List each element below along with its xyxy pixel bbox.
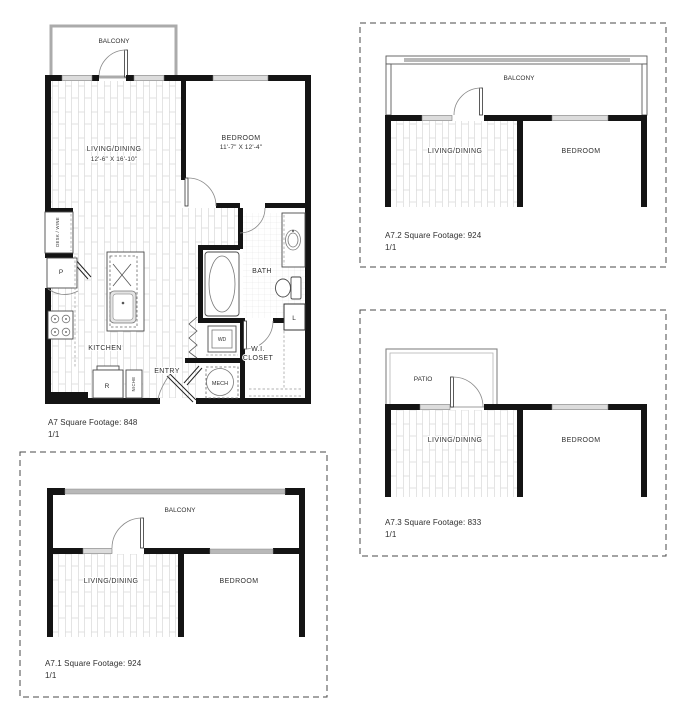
caption-a7-pages: 1/1: [48, 430, 60, 439]
label-wi-closet-2: CLOSET: [243, 355, 274, 362]
bathtub: [205, 252, 239, 316]
caption-a7-1-pages: 1/1: [45, 671, 57, 680]
label-bedroom: BEDROOM: [222, 135, 261, 142]
bedroom-window: [552, 405, 608, 410]
a7-1-balcony: [47, 488, 305, 548]
balcony-door-swing: [454, 88, 481, 115]
caption-a7-3-pages: 1/1: [385, 530, 397, 539]
closet-door-leaf: [244, 321, 247, 349]
kitchen-island: [107, 252, 144, 331]
window: [62, 76, 92, 81]
a7-2-living-floor: [391, 121, 517, 207]
stove: [48, 311, 73, 339]
floorplan-drawing: BALCONY LIVING/DINING 12'-6" X 16'-10" B…: [0, 0, 691, 720]
closet-shelving: [249, 331, 303, 396]
label-living-dim: 12'-6" X 16'-10": [91, 156, 137, 163]
bedroom-window: [552, 116, 608, 121]
window: [420, 405, 450, 410]
window: [83, 549, 112, 554]
label-bedroom-dim: 11'-7" X 12'-4": [220, 144, 262, 151]
label-pantry: P: [59, 269, 63, 276]
floorplan-sheet: BALCONY LIVING/DINING 12'-6" X 16'-10" B…: [0, 0, 691, 720]
a7-2-balcony: [386, 56, 647, 115]
label-niche: NICHE: [131, 377, 136, 392]
a7-1-living-floor: [53, 554, 178, 637]
label-balcony: BALCONY: [98, 38, 130, 45]
label-living-dining: LIVING/DINING: [428, 148, 483, 155]
label-balcony: BALCONY: [503, 75, 535, 82]
balcony-door-swing: [112, 518, 142, 548]
window: [134, 76, 164, 81]
plan-a7-1: BALCONY LIVING/DINING BEDROOM A7.1 Squar…: [20, 452, 327, 697]
bedroom-window: [210, 549, 273, 554]
label-desk-wine: DESK / WINE: [55, 217, 60, 247]
bedroom-window: [213, 76, 268, 81]
a7-balcony: [51, 26, 176, 77]
a7-3-patio: [386, 349, 497, 407]
caption-a7-2: A7.2 Square Footage: 924: [385, 231, 482, 240]
balcony-door-leaf: [480, 88, 483, 115]
plan-a7: BALCONY LIVING/DINING 12'-6" X 16'-10" B…: [45, 26, 311, 439]
balcony-door-leaf: [125, 50, 128, 77]
label-living-dining: LIVING/DINING: [87, 146, 142, 153]
caption-a7: A7 Square Footage: 848: [48, 418, 138, 427]
label-wd: WD: [218, 337, 227, 343]
plan-a7-3: PATIO LIVING/DINING BEDROOM A7.3 Square …: [360, 310, 666, 556]
bedroom-door-swing: [188, 178, 216, 206]
label-bedroom: BEDROOM: [562, 148, 601, 155]
label-linen: L: [292, 315, 296, 322]
label-bedroom: BEDROOM: [562, 437, 601, 444]
plan-a7-2: BALCONY LIVING/DINING BEDROOM A7.2 Squar…: [360, 23, 666, 267]
patio-door-leaf: [451, 377, 454, 407]
label-balcony: BALCONY: [164, 507, 196, 514]
caption-a7-3: A7.3 Square Footage: 833: [385, 518, 482, 527]
caption-a7-2-pages: 1/1: [385, 243, 397, 252]
caption-a7-1: A7.1 Square Footage: 924: [45, 659, 142, 668]
balcony-door-swing: [99, 50, 126, 77]
label-refrigerator: R: [105, 383, 110, 390]
label-wi-closet-1: W.I.: [251, 346, 265, 353]
bedroom-door-leaf: [185, 178, 188, 206]
label-bath: BATH: [252, 268, 272, 275]
label-entry: ENTRY: [154, 368, 180, 375]
a7-3-living-floor: [391, 410, 517, 497]
label-patio: PATIO: [414, 376, 433, 383]
vanity-sink: [282, 213, 305, 267]
label-bedroom: BEDROOM: [220, 578, 259, 585]
balcony-door-leaf: [141, 518, 144, 548]
patio-door-swing: [453, 377, 483, 407]
window: [422, 116, 452, 121]
closet-door-swing: [245, 321, 273, 349]
label-living-dining: LIVING/DINING: [428, 437, 483, 444]
label-kitchen: KITCHEN: [88, 345, 122, 352]
label-mech: MECH: [212, 381, 228, 387]
label-living-dining: LIVING/DINING: [84, 578, 139, 585]
refrigerator: [93, 366, 123, 398]
